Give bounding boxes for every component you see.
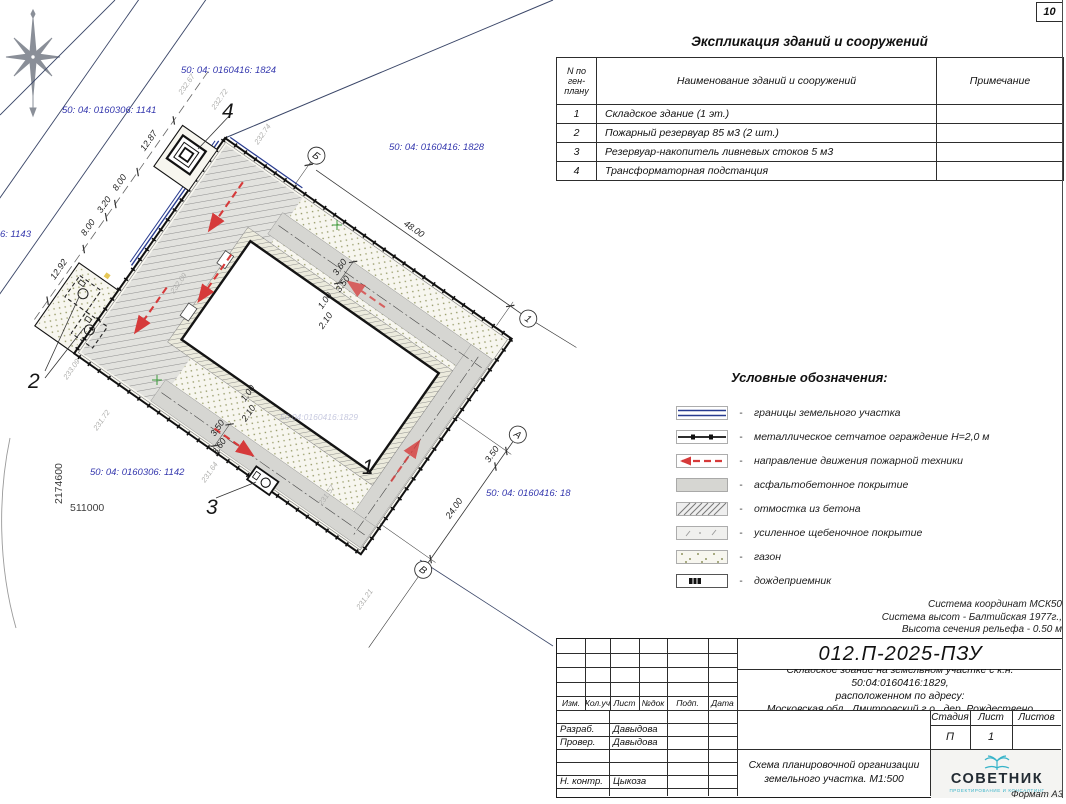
lawn-icon (676, 550, 728, 564)
role-developer: Разраб. (557, 723, 609, 736)
name-ncontrol: Цыкоза (610, 775, 667, 788)
cadastral-1824: 50: 04: 0160416: 1824 (181, 65, 276, 76)
format-note: Формат А3 (985, 789, 1063, 800)
col-header-num: N по ген- плану (557, 58, 597, 105)
svg-text:233.09: 233.09 (61, 357, 83, 382)
asphalt-icon (676, 478, 728, 492)
sheet-number-box: 10 (1036, 2, 1063, 22)
axis-bubble-top-start: Б (303, 144, 329, 171)
fire-route-icon (676, 454, 728, 468)
dim-48-label: 48.00 (402, 218, 426, 239)
explication-title: Экспликация зданий и сооружений (556, 34, 1063, 49)
col-data: Дата (708, 696, 737, 710)
name-developer: Давыдова (610, 723, 667, 736)
legend-item-lawn: -газон (676, 545, 1026, 569)
legend-item-fire-route: -направление движения пожарной техники (676, 449, 1026, 473)
cadastral-1142: 50: 04: 0160306: 1142 (90, 467, 185, 478)
note-coord-system: Система координат МСК50 (700, 599, 1062, 612)
legend-title: Условные обозначения: (731, 370, 1026, 385)
svg-text:231.64: 231.64 (199, 460, 220, 485)
axis-bubble-right-start: А (506, 423, 530, 447)
col-header-name: Наименование зданий и сооружений (597, 58, 937, 105)
marker-yellow (104, 272, 111, 279)
legend-item-storm-inlet: -дождеприемник (676, 569, 1026, 593)
table-row: 1 Складское здание (1 эт.) (557, 105, 1064, 124)
table-row: 4 Трансформаторная подстанция (557, 162, 1064, 181)
sheets-value (1012, 725, 1061, 749)
axis-bubble-top-end: 1 (516, 307, 540, 331)
sheet-frame-right (1062, 0, 1063, 798)
svg-text:12.87: 12.87 (138, 128, 160, 153)
role-checker: Провер. (557, 736, 609, 749)
doc-number: 012.П-2025-ПЗУ (737, 639, 1064, 669)
table-row: 2 Пожарный резервуар 85 м3 (2 шт.) (557, 124, 1064, 143)
building-1-label: 1 (362, 456, 374, 479)
drawing-sheet: 48.00 Б 1 3.50 24.00 А В (0, 0, 1066, 804)
company-name: СОВЕТНИК (951, 771, 1043, 787)
svg-text:231.21: 231.21 (354, 587, 375, 612)
name-checker: Давыдова (610, 736, 667, 749)
coordinate-vertical: 2174600 (53, 463, 65, 504)
cadastral-1828: 50: 04: 0160416: 1828 (389, 142, 485, 153)
sheet-header: Лист (970, 710, 1012, 725)
table-row: 3 Резервуар-накопитель ливневых стоков 5… (557, 143, 1064, 162)
building-4-label: 4 (222, 100, 234, 123)
mesh-fence-icon (676, 430, 728, 444)
note-relief: Высота сечения рельефа - 0.50 м (700, 624, 1062, 637)
stage-header: Стадия (930, 710, 970, 725)
cadastral-18xx: 50: 04: 0160416: 18 (486, 488, 571, 499)
building-3-label: 3 (206, 496, 218, 519)
col-izm: Изм. (557, 696, 585, 710)
role-ncontrol: Н. контр. (557, 775, 609, 788)
legend-item-asphalt: -асфальтобетонное покрытие (676, 473, 1026, 497)
drawing-title: Схема планировочной организации земельно… (739, 749, 929, 796)
svg-text:12.92: 12.92 (48, 257, 69, 281)
svg-text:231.72: 231.72 (91, 408, 113, 433)
storm-inlet-icon (676, 574, 728, 588)
sheets-header: Листов (1012, 710, 1061, 725)
col-header-note: Примечание (937, 58, 1064, 105)
building-2-label: 2 (27, 370, 40, 393)
survey-notes: Система координат МСК50 Система высот - … (700, 599, 1062, 637)
coordinate-horizontal: 511000 (70, 502, 104, 514)
legend: Условные обозначения: -границы земельног… (676, 370, 1026, 593)
stage-value: П (930, 725, 970, 749)
project-description: Складское здание на земельном участке с … (739, 669, 1061, 710)
palm-tree-icon (982, 755, 1012, 771)
explication-table: Экспликация зданий и сооружений N по ген… (556, 34, 1063, 181)
col-list: Лист (610, 696, 639, 710)
sheet-value: 1 (970, 725, 1012, 749)
dim-24-label: 24.00 (443, 496, 465, 521)
legend-item-apron: -отмостка из бетона (676, 497, 1026, 521)
col-podp: Подп. (667, 696, 708, 710)
parcel-group: 48.00 Б 1 3.50 24.00 А В (0, 0, 634, 652)
explication-header-row: N по ген- плану Наименование зданий и со… (557, 58, 1064, 105)
col-ndok: №док (639, 696, 667, 710)
legend-item-boundary: -границы земельного участка (676, 401, 1026, 425)
cadastral-1829-faint: 50:04:0160416:1829 (280, 412, 358, 422)
parcel-boundary-icon (676, 406, 728, 420)
title-block: 012.П-2025-ПЗУ Складское здание на земел… (556, 638, 1063, 798)
legend-item-fence: -металлическое сетчатое ограждение Н=2,0… (676, 425, 1026, 449)
legend-item-gravel: -усиленное щебеночное покрытие (676, 521, 1026, 545)
dim-350-label: 3.50 (483, 444, 501, 464)
contour-curve (2, 438, 16, 628)
gravel-icon (676, 526, 728, 540)
cadastral-1143: 6: 1143 (0, 229, 32, 240)
concrete-apron-icon (676, 502, 728, 516)
cadastral-1141: 50: 04: 0160306: 1141 (62, 105, 156, 116)
note-height-system: Система высот - Балтийская 1977г., (700, 612, 1062, 625)
col-koluch: Кол.уч (585, 696, 610, 710)
